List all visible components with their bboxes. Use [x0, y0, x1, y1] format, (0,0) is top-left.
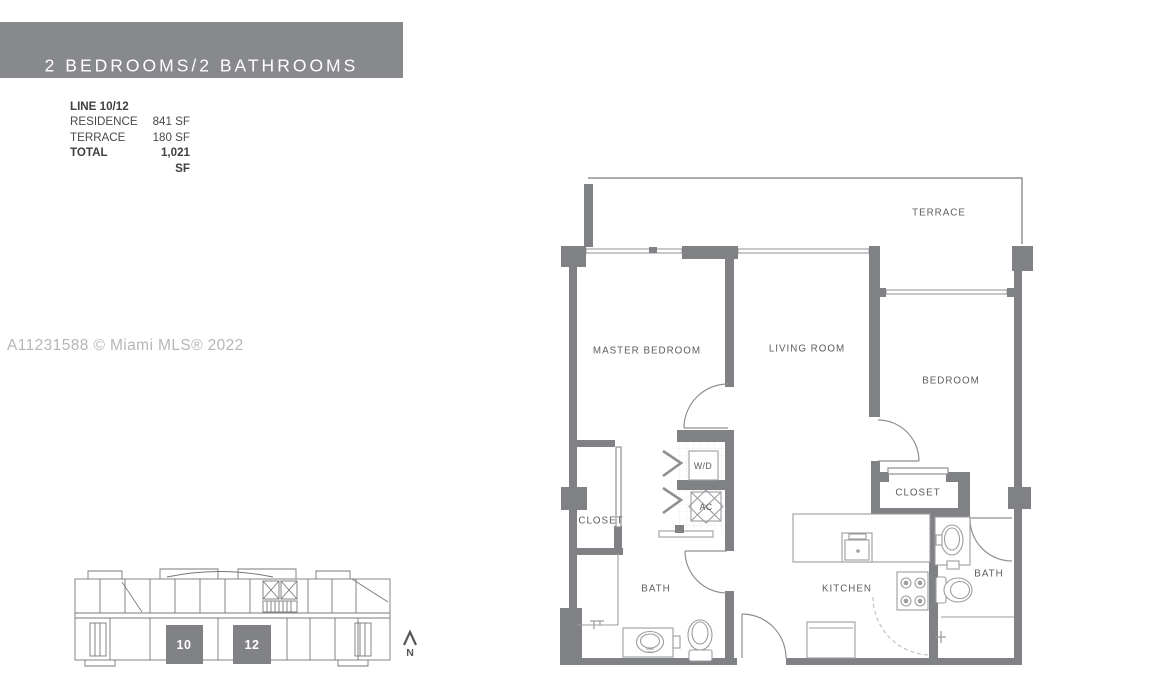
north-label: N: [406, 647, 414, 659]
room-label-ac: AC: [699, 502, 712, 512]
room-label-kitchen: KITCHEN: [822, 584, 872, 595]
kitchen-counter: [793, 514, 930, 562]
room-label-bedroom: BEDROOM: [922, 376, 980, 387]
room-label-living-room: LIVING ROOM: [769, 344, 845, 355]
kitchen-cabinet: [807, 622, 855, 658]
room-label-wd: W/D: [694, 461, 712, 471]
bedroom-door: [878, 420, 919, 461]
master-bath-door: [685, 551, 727, 593]
second-bath-door: [970, 518, 1012, 561]
room-label-master-bath: BATH: [641, 584, 670, 595]
floorplan-drawing: [0, 0, 1159, 695]
room-label-bedroom-closet: CLOSET: [895, 488, 940, 499]
floorplan-sheet: 2 BEDROOMS/2 BATHROOMS LINE 10/12 RESIDE…: [0, 0, 1159, 695]
elevator-core: [263, 581, 297, 612]
fixtures: [577, 451, 1014, 661]
toilet-icon: [688, 620, 712, 661]
north-arrow-icon: [404, 632, 416, 645]
keyplan-unit-10-label: 10: [177, 638, 192, 652]
master-bedroom-door: [684, 384, 728, 428]
toilet-icon-2: [936, 577, 972, 603]
room-label-master-closet: CLOSET: [578, 516, 623, 527]
entry-door: [742, 614, 786, 658]
stair-closets: [90, 623, 371, 656]
room-label-master-bedroom: MASTER BEDROOM: [593, 346, 701, 357]
keyplan-unit-12-label: 12: [245, 638, 260, 652]
sink-icon-2: [935, 517, 970, 569]
keyplan: [75, 569, 390, 666]
shower-icon: [577, 553, 618, 629]
windows: [586, 249, 1007, 294]
room-label-second-bath: BATH: [974, 569, 1003, 580]
sink-icon: [623, 628, 680, 657]
room-label-terrace: TERRACE: [912, 208, 966, 219]
stove-icon: [897, 572, 928, 610]
shelf: [659, 531, 713, 537]
bedroom-closet-slider: [888, 468, 948, 474]
shower-icon-2: [935, 617, 1014, 643]
